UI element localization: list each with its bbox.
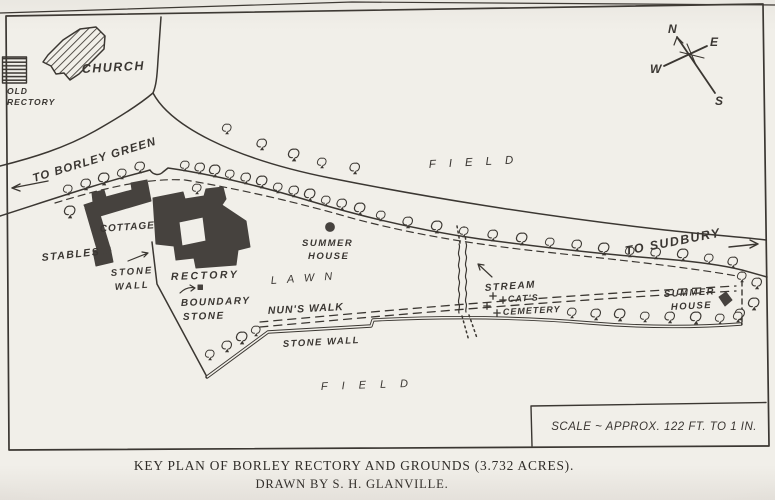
stream-arrow — [478, 264, 492, 277]
stone-wall-left-label-2: WALL — [114, 280, 150, 293]
tree-icon — [665, 312, 675, 323]
tree-icon — [350, 163, 360, 174]
compass-e-label: E — [710, 35, 719, 49]
tree-icon — [236, 332, 246, 344]
summer-house-right-label-2: HOUSE — [671, 300, 713, 313]
tree-icon — [737, 272, 746, 282]
tree-icon — [317, 158, 326, 168]
sudbury-arrow — [729, 240, 758, 248]
compass-w-label: W — [650, 62, 663, 76]
field-bottom-label: FIELD — [321, 377, 423, 393]
rectory-label: RECTORY — [171, 269, 240, 283]
tree-icon — [715, 314, 724, 324]
caption-line-2: DRAWN BY S. H. GLANVILLE. — [255, 477, 448, 491]
stone-wall-arrow — [128, 252, 148, 261]
tree-icon — [205, 350, 214, 360]
tree-icon — [288, 149, 298, 161]
to-borley-green-label: TO BORLEY GREEN — [31, 136, 158, 185]
stream-west-line — [458, 244, 459, 313]
grave-cross-icon — [490, 293, 496, 299]
stream-east-line — [465, 243, 466, 312]
tree-icon — [192, 184, 201, 194]
scale-label: SCALE ~ APPROX. 122 FT. TO 1 IN. — [551, 421, 757, 433]
stables-label: STABLES — [41, 246, 101, 264]
tree-icon — [257, 139, 267, 150]
caption: KEY PLAN OF BORLEY RECTORY AND GROUNDS (… — [134, 458, 574, 491]
compass-rose: N E W S — [650, 22, 723, 108]
tree-icon — [591, 309, 601, 320]
tree-icon — [752, 278, 762, 289]
nuns-walk-label: NUN'S WALK — [268, 301, 345, 317]
cottage-label: COTTAGE — [99, 220, 155, 235]
summer-house-right-marker — [719, 292, 732, 306]
tree-icon — [572, 240, 582, 251]
tree-icon — [251, 326, 260, 336]
summer-house-center-label-1: SUMMER — [302, 238, 353, 249]
cats-cemetery-label-2: CEMETERY — [503, 304, 561, 317]
tree-icon — [222, 124, 231, 134]
tree-icon — [222, 341, 232, 352]
old-rectory-label-2: RECTORY — [7, 97, 56, 107]
tree-icon — [748, 298, 758, 310]
tree-icon — [117, 169, 126, 179]
tree-icon — [567, 308, 576, 318]
summer-house-right-label-1: SUMMER — [664, 286, 716, 300]
church-lane — [153, 17, 161, 93]
map-labels: CHURCH OLD RECTORY TO BORLEY GREEN FIELD… — [7, 59, 757, 433]
tree-icon — [614, 309, 624, 321]
boundary-stone-label-1: BOUNDARY — [181, 296, 251, 309]
tree-icon — [81, 179, 91, 190]
compass-n-label: N — [668, 22, 677, 36]
grave-cross-icon — [484, 303, 490, 309]
summer-house-center-marker — [326, 223, 335, 232]
tree-icon — [690, 312, 700, 324]
cats-cemetery-label-1: CAT'S — [508, 292, 539, 304]
compass-s-label: S — [715, 94, 723, 108]
church-label: CHURCH — [81, 59, 145, 76]
stone-wall-bottom-label: STONE WALL — [283, 335, 361, 350]
tree-icon — [640, 312, 649, 322]
tree-icon — [733, 312, 742, 322]
caption-line-1: KEY PLAN OF BORLEY RECTORY AND GROUNDS (… — [134, 458, 574, 473]
tree-icon — [273, 183, 282, 193]
summer-house-center-label-2: HOUSE — [308, 251, 349, 262]
borley-map-svg: N E W S CHURCH OLD RECTORY TO BORLEY GRE… — [0, 0, 775, 500]
photo-edge-line — [0, 2, 775, 13]
stream-lines — [457, 226, 477, 341]
tree-icon — [64, 206, 74, 218]
walls — [152, 242, 742, 377]
stream-label: STREAM — [484, 279, 536, 294]
boundary-stone-label-2: STONE — [183, 311, 225, 323]
grave-cross-icon — [494, 310, 500, 316]
tree-icon — [677, 249, 687, 261]
old-rectory-label-1: OLD — [7, 86, 28, 96]
boundary-stone-marker — [198, 285, 203, 290]
grave-cross-icon — [500, 297, 506, 303]
stone-wall-left-label-1: STONE — [110, 265, 153, 279]
rectory-building — [153, 187, 250, 268]
lawn-label: LAWN — [270, 270, 342, 287]
boundary-stone-arrow — [180, 285, 195, 293]
field-top-label: FIELD — [429, 154, 527, 171]
old-rectory-building — [3, 57, 27, 83]
scanned-map-page: N E W S CHURCH OLD RECTORY TO BORLEY GRE… — [0, 0, 775, 500]
